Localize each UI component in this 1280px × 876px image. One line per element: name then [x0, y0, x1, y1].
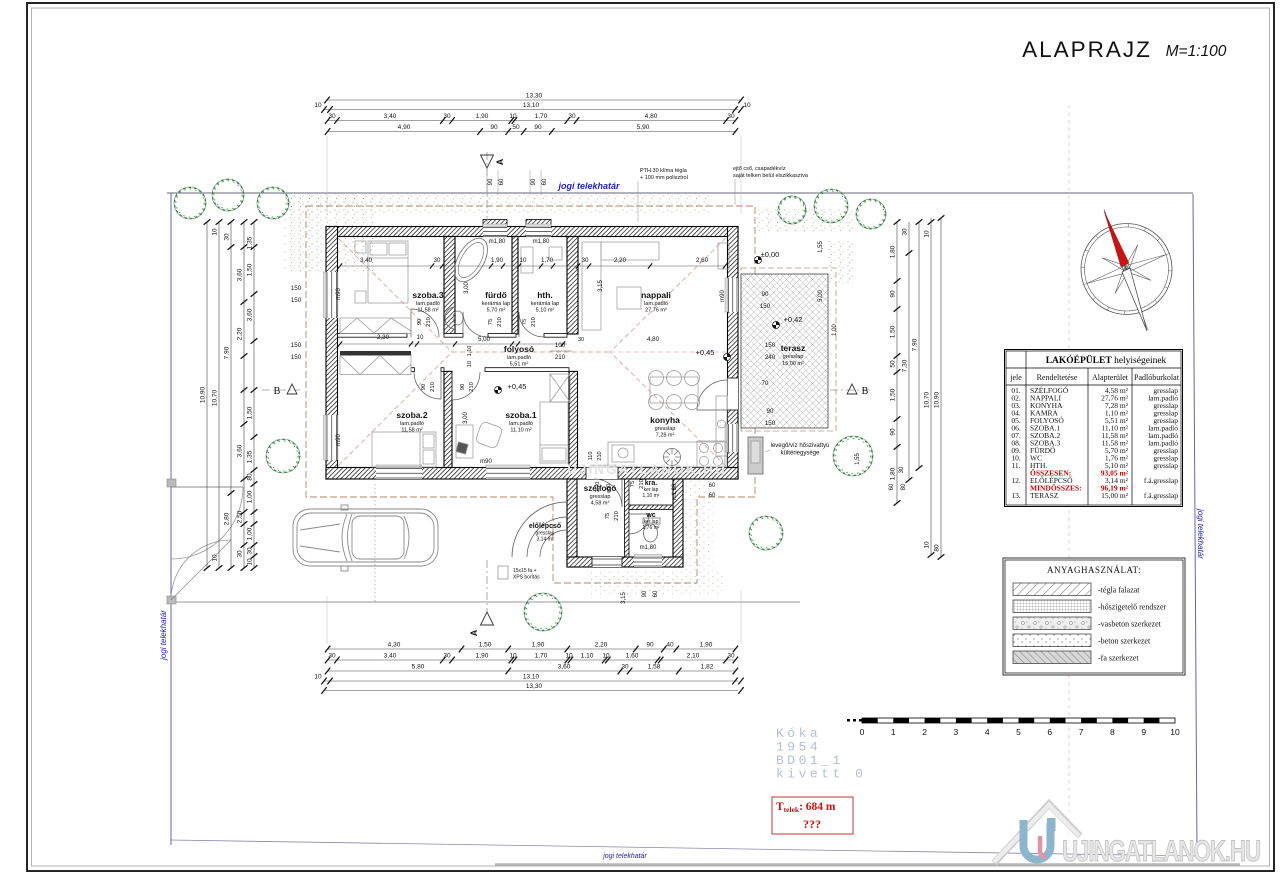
- svg-text:2,80: 2,80: [224, 512, 231, 525]
- svg-text:1,00: 1,00: [832, 324, 838, 336]
- svg-text:90: 90: [642, 590, 648, 597]
- svg-text:30: 30: [443, 653, 451, 660]
- svg-text:10,90: 10,90: [200, 386, 207, 403]
- svg-text:10: 10: [924, 541, 931, 549]
- svg-text:m1,80: m1,80: [489, 239, 506, 245]
- svg-text:1,50: 1,50: [479, 642, 492, 649]
- svg-text:10: 10: [924, 230, 931, 238]
- svg-text:60: 60: [606, 484, 612, 490]
- svg-text:1,55: 1,55: [855, 453, 861, 465]
- svg-text:80: 80: [247, 473, 254, 481]
- svg-text:7,90: 7,90: [224, 346, 231, 359]
- svg-text:1,90: 1,90: [700, 642, 713, 649]
- svg-text:60: 60: [709, 483, 716, 489]
- svg-text:jogi telekhatár: jogi telekhatár: [602, 853, 647, 860]
- svg-text:UJINGATLANOK.HU: UJINGATLANOK.HU: [1062, 835, 1260, 868]
- svg-text:+0,42: +0,42: [784, 315, 803, 324]
- svg-text:30: 30: [902, 228, 909, 236]
- svg-text:30: 30: [328, 113, 336, 120]
- svg-text:m90: m90: [480, 459, 492, 465]
- svg-text:gresslap: gresslap: [783, 354, 804, 360]
- svg-text:előlépcső: előlépcső: [529, 523, 561, 530]
- svg-text:0: 0: [860, 727, 865, 737]
- svg-text:B: B: [862, 386, 869, 397]
- svg-text:f.á.gresslap: f.á.gresslap: [1144, 491, 1178, 500]
- svg-text:30: 30: [328, 653, 336, 660]
- svg-text:1,50: 1,50: [890, 325, 897, 338]
- svg-text:75: 75: [605, 513, 611, 519]
- svg-text:2,70: 2,70: [595, 482, 601, 493]
- svg-text:13.: 13.: [1011, 491, 1021, 500]
- svg-text:XPS borítás: XPS borítás: [513, 575, 540, 581]
- svg-text:30: 30: [568, 113, 576, 120]
- svg-text:4,58 m²: 4,58 m²: [591, 501, 610, 507]
- svg-text:jele: jele: [1009, 373, 1022, 382]
- svg-text:1,35: 1,35: [247, 236, 254, 249]
- svg-text:3,40: 3,40: [360, 257, 373, 264]
- svg-text:1,80: 1,80: [890, 467, 897, 480]
- svg-text:wc: wc: [645, 512, 655, 519]
- svg-text:PTH.30 klíma tégla: PTH.30 klíma tégla: [640, 168, 688, 174]
- svg-text:3: 3: [954, 727, 959, 737]
- svg-text:10: 10: [417, 334, 424, 341]
- svg-text:levegő/víz hőszivattyú: levegő/víz hőszivattyú: [771, 443, 830, 449]
- svg-text:30: 30: [224, 233, 231, 241]
- svg-text:1,50: 1,50: [890, 388, 897, 401]
- svg-text:80: 80: [934, 544, 941, 552]
- svg-text:10,70: 10,70: [212, 389, 219, 406]
- svg-text:5,10 m²: 5,10 m²: [536, 308, 555, 314]
- svg-text:1,60: 1,60: [626, 653, 639, 660]
- svg-text:10: 10: [1170, 727, 1180, 737]
- svg-text:75: 75: [630, 481, 636, 487]
- svg-text:1,00: 1,00: [247, 527, 254, 540]
- svg-text:10: 10: [314, 102, 322, 109]
- svg-text:UJINGATLANOK.HU: UJINGATLANOK.HU: [567, 462, 727, 477]
- svg-text:ALAPRAJZ: ALAPRAJZ: [1022, 37, 1152, 62]
- svg-text:7: 7: [1079, 727, 1084, 737]
- svg-text:210: 210: [531, 317, 537, 327]
- svg-text:2,50: 2,50: [237, 510, 244, 523]
- svg-text:1,80: 1,80: [890, 245, 897, 258]
- svg-text:210: 210: [555, 354, 566, 361]
- svg-text:f.á.gresslap: f.á.gresslap: [1144, 476, 1178, 485]
- svg-text:3,15: 3,15: [598, 280, 604, 292]
- svg-text:2,20: 2,20: [237, 327, 244, 340]
- svg-text:90: 90: [417, 319, 423, 325]
- svg-text:7,28 m²: 7,28 m²: [656, 433, 675, 439]
- svg-text:A: A: [469, 629, 479, 636]
- svg-text:jogi telekhatár: jogi telekhatár: [557, 181, 620, 191]
- svg-text:7,30: 7,30: [902, 359, 909, 372]
- svg-text:40: 40: [666, 642, 674, 649]
- svg-text:90: 90: [531, 178, 537, 185]
- svg-text:1,00: 1,00: [247, 490, 254, 503]
- svg-text:30: 30: [899, 466, 905, 473]
- svg-text:30: 30: [578, 337, 584, 343]
- svg-text:30: 30: [727, 113, 735, 120]
- svg-text:150: 150: [760, 303, 771, 310]
- svg-text:1,82: 1,82: [701, 664, 714, 671]
- svg-text:15x15 fa +: 15x15 fa +: [513, 568, 537, 574]
- svg-text:90: 90: [460, 384, 466, 390]
- svg-text:210: 210: [469, 382, 475, 392]
- svg-text:4,80: 4,80: [645, 113, 658, 120]
- svg-text:jogi telekhatár: jogi telekhatár: [1196, 508, 1205, 559]
- svg-text:12.: 12.: [1011, 476, 1021, 485]
- svg-text:saját telken belül elszikkaszt: saját telken belül elszikkasztva: [733, 173, 809, 179]
- svg-text:13,10: 13,10: [523, 674, 540, 681]
- svg-text:75: 75: [488, 319, 494, 325]
- svg-text:50: 50: [890, 360, 897, 368]
- svg-text:-fa szerkezet: -fa szerkezet: [1098, 654, 1139, 663]
- svg-text:11,10 m²: 11,10 m²: [510, 428, 531, 434]
- svg-text:szoba.2: szoba.2: [396, 410, 427, 420]
- svg-text:m90: m90: [336, 288, 342, 300]
- svg-text:folyosó: folyosó: [504, 344, 534, 354]
- svg-text:210: 210: [497, 317, 503, 327]
- svg-text:1,10 m²: 1,10 m²: [643, 493, 660, 499]
- svg-text:+ 100 mm polisztrol: + 100 mm polisztrol: [640, 175, 688, 181]
- svg-text:1,10: 1,10: [581, 653, 594, 660]
- svg-text:gresslap: gresslap: [590, 494, 611, 500]
- svg-text:-hőszigetelő rendszer: -hőszigetelő rendszer: [1098, 603, 1167, 612]
- svg-text:150: 150: [765, 420, 776, 427]
- svg-text:hth.: hth.: [537, 290, 553, 300]
- svg-text:10: 10: [509, 653, 517, 660]
- svg-text:100: 100: [555, 342, 566, 349]
- svg-text:m90: m90: [336, 434, 342, 446]
- svg-text:m90: m90: [720, 290, 726, 302]
- svg-text:-vasbeton szerkezet: -vasbeton szerkezet: [1098, 620, 1162, 629]
- svg-text:szoba.3: szoba.3: [412, 290, 443, 300]
- svg-text:lam.padló: lam.padló: [400, 421, 424, 427]
- svg-text:90: 90: [490, 124, 498, 131]
- svg-text:50: 50: [512, 124, 520, 131]
- svg-text:90: 90: [534, 124, 542, 131]
- svg-text:210: 210: [639, 479, 645, 489]
- svg-text:150: 150: [291, 354, 302, 361]
- svg-text:110: 110: [588, 452, 594, 461]
- svg-text:30: 30: [621, 664, 629, 671]
- svg-text:10: 10: [509, 113, 517, 120]
- svg-text:gresslap: gresslap: [655, 426, 676, 432]
- svg-text:kerámia lap: kerámia lap: [531, 301, 559, 307]
- svg-text:Alapterület: Alapterület: [1092, 373, 1129, 382]
- svg-text:3,60: 3,60: [558, 664, 571, 671]
- svg-text:60: 60: [542, 178, 548, 185]
- svg-text:szoba.1: szoba.1: [505, 410, 536, 420]
- svg-text:60: 60: [709, 493, 716, 499]
- svg-text:2,30: 2,30: [377, 334, 390, 341]
- svg-text:80: 80: [901, 483, 907, 490]
- svg-text:3,60: 3,60: [247, 308, 254, 321]
- svg-text:90: 90: [890, 428, 897, 436]
- svg-text:fürdő: fürdő: [485, 290, 507, 300]
- svg-text:9: 9: [1141, 727, 1146, 737]
- svg-text:10,70: 10,70: [924, 391, 931, 408]
- svg-text:11,58 m²: 11,58 m²: [401, 428, 422, 434]
- svg-text:1,50: 1,50: [247, 263, 254, 276]
- svg-text:1,35: 1,35: [247, 450, 254, 463]
- svg-text:1,90: 1,90: [476, 113, 489, 120]
- svg-text:nappali: nappali: [641, 290, 671, 300]
- svg-text:30: 30: [247, 547, 254, 555]
- svg-text:30: 30: [727, 653, 735, 660]
- svg-text:jogi telekhatár: jogi telekhatár: [159, 610, 168, 661]
- svg-text:10: 10: [212, 228, 219, 236]
- svg-text:3,00: 3,00: [464, 282, 470, 294]
- svg-text:lam.padló: lam.padló: [416, 301, 440, 307]
- svg-text:2: 2: [922, 727, 927, 737]
- svg-text:lam.padló: lam.padló: [509, 421, 533, 427]
- svg-text:60: 60: [653, 590, 659, 597]
- svg-text:10: 10: [467, 361, 473, 367]
- svg-text:+0,45: +0,45: [508, 382, 527, 391]
- svg-text:11.: 11.: [1011, 461, 1020, 470]
- svg-text:1: 1: [891, 727, 896, 737]
- svg-text:8: 8: [1110, 727, 1115, 737]
- svg-text:4,90: 4,90: [398, 124, 411, 131]
- svg-text:M=1:100: M=1:100: [1166, 43, 1227, 60]
- svg-text:90: 90: [762, 291, 769, 298]
- svg-text:5,70 m²: 5,70 m²: [487, 308, 506, 314]
- svg-text:30: 30: [582, 257, 589, 264]
- svg-text:1,90: 1,90: [476, 653, 489, 660]
- svg-text:1,76 m²: 1,76 m²: [643, 525, 660, 531]
- svg-text:15,00 m²: 15,00 m²: [782, 361, 804, 367]
- svg-text:kra.: kra.: [645, 480, 658, 487]
- svg-text:5,00: 5,00: [478, 336, 491, 343]
- svg-text:13,30: 13,30: [526, 93, 543, 100]
- svg-text:kerámia lap: kerámia lap: [482, 301, 510, 307]
- svg-text:1,90: 1,90: [532, 642, 545, 649]
- svg-text:2,20: 2,20: [595, 642, 608, 649]
- svg-text:1,50: 1,50: [247, 406, 254, 419]
- svg-text:90: 90: [767, 408, 774, 415]
- svg-text:5,90: 5,90: [637, 124, 650, 131]
- svg-text:lam.padló: lam.padló: [507, 355, 531, 361]
- svg-text:30: 30: [237, 550, 244, 558]
- svg-text:15,00 m²: 15,00 m²: [1101, 491, 1129, 500]
- svg-text:10: 10: [565, 653, 573, 660]
- svg-text:1,70: 1,70: [541, 257, 554, 264]
- svg-text:60: 60: [499, 178, 505, 185]
- svg-text:B: B: [274, 386, 281, 397]
- svg-text:60: 60: [889, 483, 895, 490]
- svg-text:3,60: 3,60: [237, 268, 244, 281]
- svg-text:konyha: konyha: [650, 415, 680, 425]
- svg-text:3,00: 3,00: [463, 412, 469, 424]
- svg-text:30: 30: [434, 257, 441, 264]
- svg-text:6: 6: [1047, 727, 1052, 737]
- svg-text:210: 210: [430, 382, 436, 392]
- svg-text:5: 5: [1016, 727, 1021, 737]
- svg-text:5,00: 5,00: [818, 290, 824, 302]
- svg-text:±0,00: ±0,00: [761, 250, 780, 259]
- svg-text:TERASZ: TERASZ: [1030, 491, 1059, 500]
- svg-text:4,30: 4,30: [388, 642, 401, 649]
- svg-text:3,40: 3,40: [384, 113, 397, 120]
- svg-text:kültériegysége: kültériegysége: [781, 451, 820, 457]
- svg-text:10: 10: [602, 653, 610, 660]
- svg-text:m1,80: m1,80: [672, 483, 678, 500]
- svg-text:-beton szerkezet: -beton szerkezet: [1098, 637, 1151, 646]
- svg-text:90: 90: [646, 642, 654, 649]
- svg-text:m1,80: m1,80: [640, 545, 657, 551]
- svg-text:3,14 m²: 3,14 m²: [537, 537, 554, 543]
- svg-text:150: 150: [291, 285, 302, 292]
- svg-text:5,80: 5,80: [412, 664, 425, 671]
- svg-text:10: 10: [212, 554, 219, 562]
- svg-text:2,10: 2,10: [687, 653, 700, 660]
- svg-text:gresslap: gresslap: [1153, 461, 1178, 470]
- svg-text:1,90: 1,90: [491, 257, 504, 264]
- svg-text:70: 70: [762, 380, 769, 387]
- svg-text:150: 150: [291, 342, 302, 349]
- svg-text:90: 90: [890, 290, 897, 298]
- svg-text:11,58 m²: 11,58 m²: [417, 308, 438, 314]
- svg-text:ejtő cső, csapadékvíz: ejtő cső, csapadékvíz: [733, 166, 786, 172]
- svg-text:240: 240: [765, 354, 776, 361]
- svg-text:m1,80: m1,80: [533, 239, 550, 245]
- svg-text:90: 90: [421, 384, 427, 390]
- svg-text:4,80: 4,80: [647, 336, 660, 343]
- svg-text:210: 210: [426, 317, 432, 327]
- svg-text:10: 10: [743, 102, 751, 109]
- svg-text:150: 150: [291, 297, 302, 304]
- svg-text:kivett 0: kivett 0: [776, 767, 866, 782]
- svg-text:90: 90: [488, 178, 494, 185]
- svg-text:210: 210: [597, 451, 603, 460]
- svg-text:1,70: 1,70: [535, 113, 548, 120]
- svg-text:4: 4: [985, 727, 990, 737]
- svg-text:3,60: 3,60: [237, 444, 244, 457]
- svg-text:210: 210: [614, 511, 620, 521]
- svg-text:ANYAGHASZNÁLAT:: ANYAGHASZNÁLAT:: [1047, 565, 1141, 575]
- svg-text:3,15: 3,15: [621, 592, 627, 604]
- svg-text:13,30: 13,30: [526, 683, 543, 690]
- svg-text:1,55: 1,55: [818, 241, 824, 253]
- svg-text:lam.padló: lam.padló: [644, 301, 668, 307]
- svg-text:+0,45: +0,45: [696, 348, 715, 357]
- svg-text:13,10: 13,10: [523, 102, 540, 109]
- svg-text:Rendeltetése: Rendeltetése: [1037, 373, 1078, 382]
- svg-text:150: 150: [765, 342, 776, 349]
- svg-text:A: A: [495, 158, 505, 165]
- svg-text:2,20: 2,20: [614, 257, 627, 264]
- svg-text:7,90: 7,90: [912, 338, 919, 351]
- svg-text:10: 10: [314, 674, 322, 681]
- svg-text:3,40: 3,40: [384, 653, 397, 660]
- svg-text:30: 30: [443, 113, 451, 120]
- svg-text:75: 75: [522, 319, 528, 325]
- svg-text:10,90: 10,90: [934, 391, 941, 408]
- svg-text:terasz: terasz: [781, 343, 806, 353]
- svg-text:1,58: 1,58: [648, 664, 661, 671]
- svg-text:1,10: 1,10: [467, 346, 473, 357]
- svg-text:5,51 m²: 5,51 m²: [510, 362, 529, 368]
- svg-text:2,60: 2,60: [696, 257, 709, 264]
- svg-text:1,70: 1,70: [535, 653, 548, 660]
- svg-text:???: ???: [803, 817, 821, 831]
- svg-text:Padlóburkolat: Padlóburkolat: [1134, 373, 1180, 382]
- svg-text:27,76 m²: 27,76 m²: [645, 308, 667, 314]
- svg-text:10: 10: [520, 257, 527, 264]
- svg-text:10: 10: [247, 558, 254, 566]
- svg-text:-tégla falazat: -tégla falazat: [1098, 586, 1140, 595]
